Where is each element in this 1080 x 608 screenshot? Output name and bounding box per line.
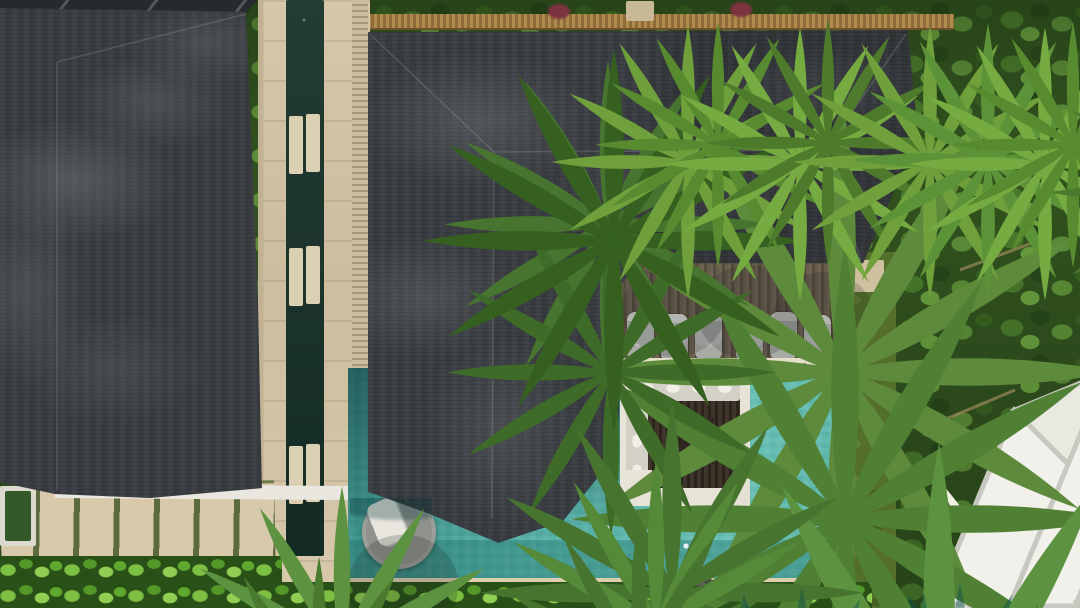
aerial-villa-photo — [0, 0, 1080, 608]
foliage-overlay — [0, 0, 1080, 608]
